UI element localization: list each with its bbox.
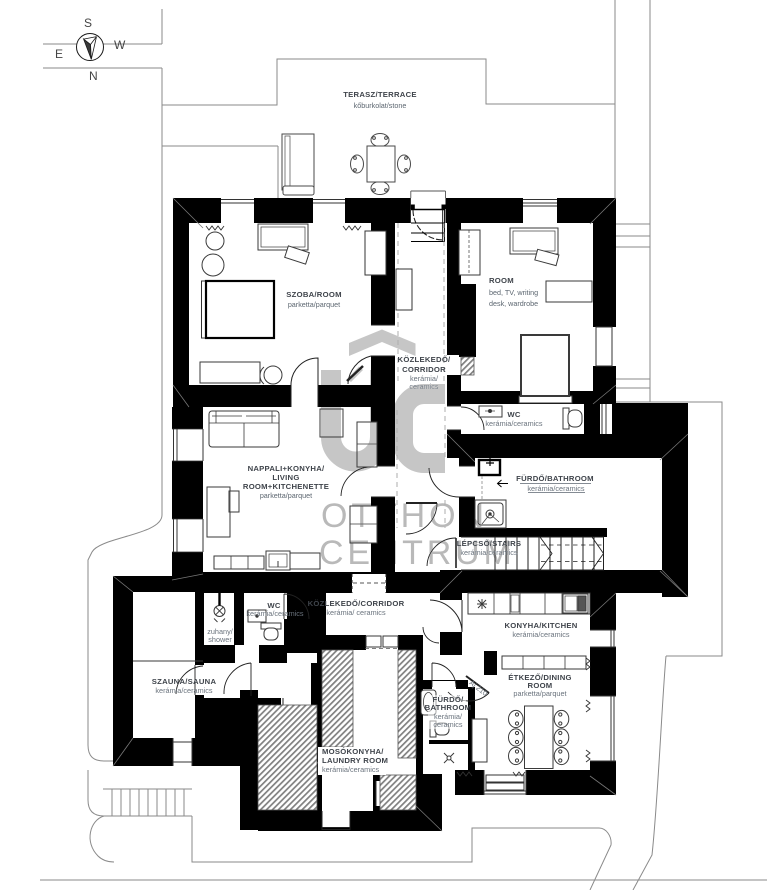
svg-text:LIVING: LIVING [272, 473, 299, 482]
svg-text:kerámia/ceramics: kerámia/ceramics [485, 419, 543, 428]
svg-text:SZAUNA/SAUNA: SZAUNA/SAUNA [152, 677, 217, 686]
svg-text:kőburkolat/stone: kőburkolat/stone [354, 101, 407, 110]
svg-text:bed, TV, writing: bed, TV, writing [489, 288, 538, 297]
svg-text:WC: WC [507, 410, 521, 419]
svg-text:kerámia/ ceramics: kerámia/ ceramics [326, 608, 386, 617]
svg-text:desk, wardrobe: desk, wardrobe [489, 299, 538, 308]
svg-text:NAPPALI+KONYHA/: NAPPALI+KONYHA/ [248, 464, 325, 473]
svg-text:LAUNDRY ROOM: LAUNDRY ROOM [322, 756, 388, 765]
svg-text:W: W [114, 38, 126, 52]
svg-text:FÜRDŐ/BATHROOM: FÜRDŐ/BATHROOM [516, 474, 594, 483]
svg-text:CENTRUM: CENTRUM [319, 534, 516, 572]
svg-text:S: S [84, 16, 92, 30]
svg-text:kerámia/ceramics: kerámia/ceramics [512, 630, 570, 639]
svg-text:parketta/parquet: parketta/parquet [513, 689, 566, 698]
svg-text:ROOM+KITCHENETTE: ROOM+KITCHENETTE [243, 482, 329, 491]
svg-text:ROOM: ROOM [489, 276, 514, 285]
svg-text:kerámia/ceramics: kerámia/ceramics [246, 609, 304, 618]
svg-text:E: E [55, 47, 63, 61]
svg-text:OTTHON: OTTHON [321, 497, 488, 535]
svg-text:N: N [89, 69, 98, 83]
svg-text:kerámia/ceramics: kerámia/ceramics [527, 484, 585, 493]
svg-text:CORRIDOR: CORRIDOR [402, 365, 446, 374]
svg-text:ceramics: ceramics [433, 720, 463, 729]
svg-text:KONYHA/KITCHEN: KONYHA/KITCHEN [504, 621, 577, 630]
svg-text:shower: shower [208, 635, 232, 644]
svg-text:TERASZ/TERRACE: TERASZ/TERRACE [343, 90, 417, 99]
svg-text:SZOBA/ROOM: SZOBA/ROOM [286, 290, 341, 299]
svg-text:parketta/parquet: parketta/parquet [260, 491, 312, 500]
svg-text:KÖZLEKEDŐ/CORRIDOR: KÖZLEKEDŐ/CORRIDOR [308, 599, 405, 608]
svg-text:MOSÓKONYHA/: MOSÓKONYHA/ [322, 747, 384, 756]
svg-text:parketta/parquet: parketta/parquet [288, 300, 340, 309]
svg-text:kerámia/ceramics: kerámia/ceramics [155, 686, 213, 695]
svg-text:KÖZLEKEDŐ/: KÖZLEKEDŐ/ [398, 355, 452, 364]
svg-text:kerámia/ceramics: kerámia/ceramics [322, 765, 380, 774]
svg-text:BATHROOM: BATHROOM [425, 703, 472, 712]
